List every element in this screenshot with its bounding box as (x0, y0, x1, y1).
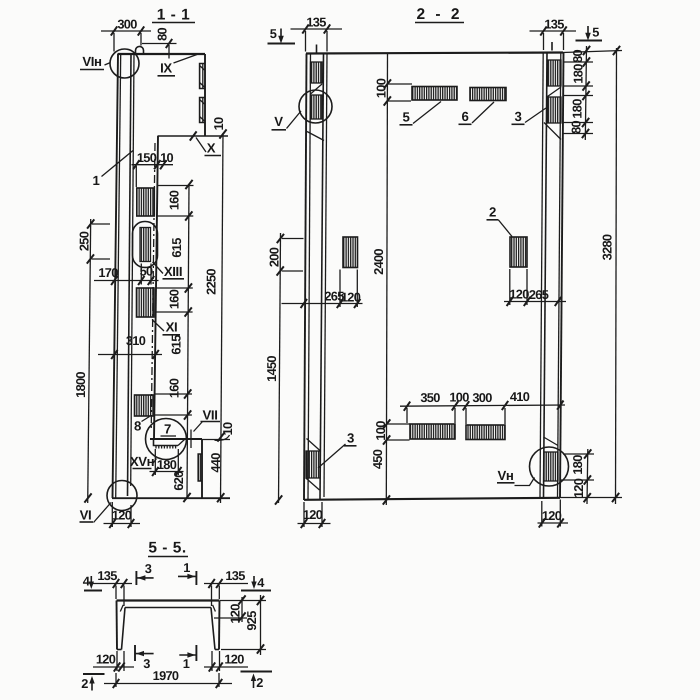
svg-text:615: 615 (169, 335, 184, 355)
svg-text:6: 6 (462, 109, 469, 124)
svg-text:100: 100 (374, 78, 389, 98)
svg-text:10: 10 (220, 422, 235, 435)
svg-text:4: 4 (257, 575, 265, 590)
svg-text:VI: VI (80, 508, 92, 523)
svg-text:160: 160 (167, 289, 182, 309)
svg-text:80: 80 (155, 28, 170, 41)
svg-text:180: 180 (570, 99, 585, 119)
svg-text:2400: 2400 (371, 249, 386, 275)
svg-text:410: 410 (510, 389, 530, 404)
svg-text:XI: XI (166, 320, 178, 335)
svg-text:450: 450 (370, 449, 385, 469)
svg-text:120: 120 (509, 287, 529, 302)
svg-text:120: 120 (112, 508, 132, 523)
svg-text:150: 150 (137, 150, 157, 165)
svg-text:180: 180 (157, 457, 177, 472)
svg-text:80: 80 (569, 121, 584, 134)
svg-text:135: 135 (544, 17, 564, 32)
svg-text:3280: 3280 (600, 234, 615, 260)
svg-text:IX: IX (160, 61, 172, 76)
svg-text:3: 3 (143, 656, 150, 671)
svg-text:XIII: XIII (164, 264, 182, 279)
svg-text:310: 310 (126, 333, 146, 348)
svg-text:XVн: XVн (130, 454, 155, 469)
svg-text:2: 2 (256, 675, 263, 690)
svg-text:3: 3 (347, 431, 354, 446)
svg-text:120: 120 (224, 652, 244, 667)
svg-text:925: 925 (244, 611, 259, 631)
svg-text:2: 2 (81, 676, 88, 691)
svg-text:135: 135 (225, 568, 245, 583)
svg-text:160: 160 (167, 378, 182, 398)
svg-text:80: 80 (570, 50, 585, 63)
svg-text:250: 250 (77, 231, 92, 251)
svg-text:120: 120 (571, 478, 586, 498)
svg-text:8: 8 (134, 419, 141, 434)
svg-text:160: 160 (167, 190, 182, 210)
svg-text:VIн: VIн (82, 54, 102, 69)
svg-text:350: 350 (420, 390, 440, 405)
svg-text:120: 120 (303, 507, 323, 522)
svg-text:135: 135 (97, 568, 117, 583)
svg-text:180: 180 (570, 455, 585, 475)
svg-text:3: 3 (145, 561, 152, 576)
svg-text:5: 5 (403, 110, 410, 125)
svg-text:440: 440 (208, 453, 223, 473)
svg-text:4: 4 (83, 574, 91, 589)
svg-text:120: 120 (228, 604, 243, 624)
svg-text:5: 5 (270, 26, 277, 41)
svg-text:2250: 2250 (204, 269, 219, 295)
svg-text:1450: 1450 (264, 356, 279, 382)
svg-text:2: 2 (489, 205, 496, 220)
svg-text:1800: 1800 (73, 372, 88, 398)
svg-text:V: V (274, 114, 283, 129)
svg-text:120: 120 (96, 652, 116, 667)
svg-text:615: 615 (169, 238, 184, 258)
svg-text:100: 100 (373, 421, 388, 441)
svg-text:1: 1 (183, 656, 190, 671)
svg-text:265: 265 (529, 287, 549, 302)
svg-text:5: 5 (592, 25, 599, 40)
svg-text:1 - 1: 1 - 1 (157, 7, 191, 24)
svg-text:120: 120 (542, 508, 562, 523)
svg-text:135: 135 (306, 15, 326, 30)
svg-text:X: X (207, 141, 216, 156)
svg-text:1: 1 (93, 173, 100, 188)
svg-text:300: 300 (117, 17, 137, 32)
svg-text:170: 170 (98, 265, 118, 280)
svg-text:1970: 1970 (153, 668, 179, 683)
svg-text:3: 3 (515, 109, 522, 124)
svg-text:100: 100 (449, 390, 469, 405)
svg-text:VII: VII (203, 408, 218, 423)
svg-text:5 - 5.: 5 - 5. (148, 540, 186, 557)
svg-text:300: 300 (472, 390, 492, 405)
svg-text:10: 10 (211, 117, 226, 130)
svg-text:10: 10 (160, 150, 173, 165)
svg-text:7: 7 (164, 422, 171, 437)
svg-text:200: 200 (267, 247, 282, 267)
svg-text:2 - 2: 2 - 2 (416, 6, 462, 23)
svg-text:1: 1 (183, 560, 190, 575)
svg-text:180: 180 (571, 64, 586, 84)
svg-text:Vн: Vн (498, 468, 514, 483)
